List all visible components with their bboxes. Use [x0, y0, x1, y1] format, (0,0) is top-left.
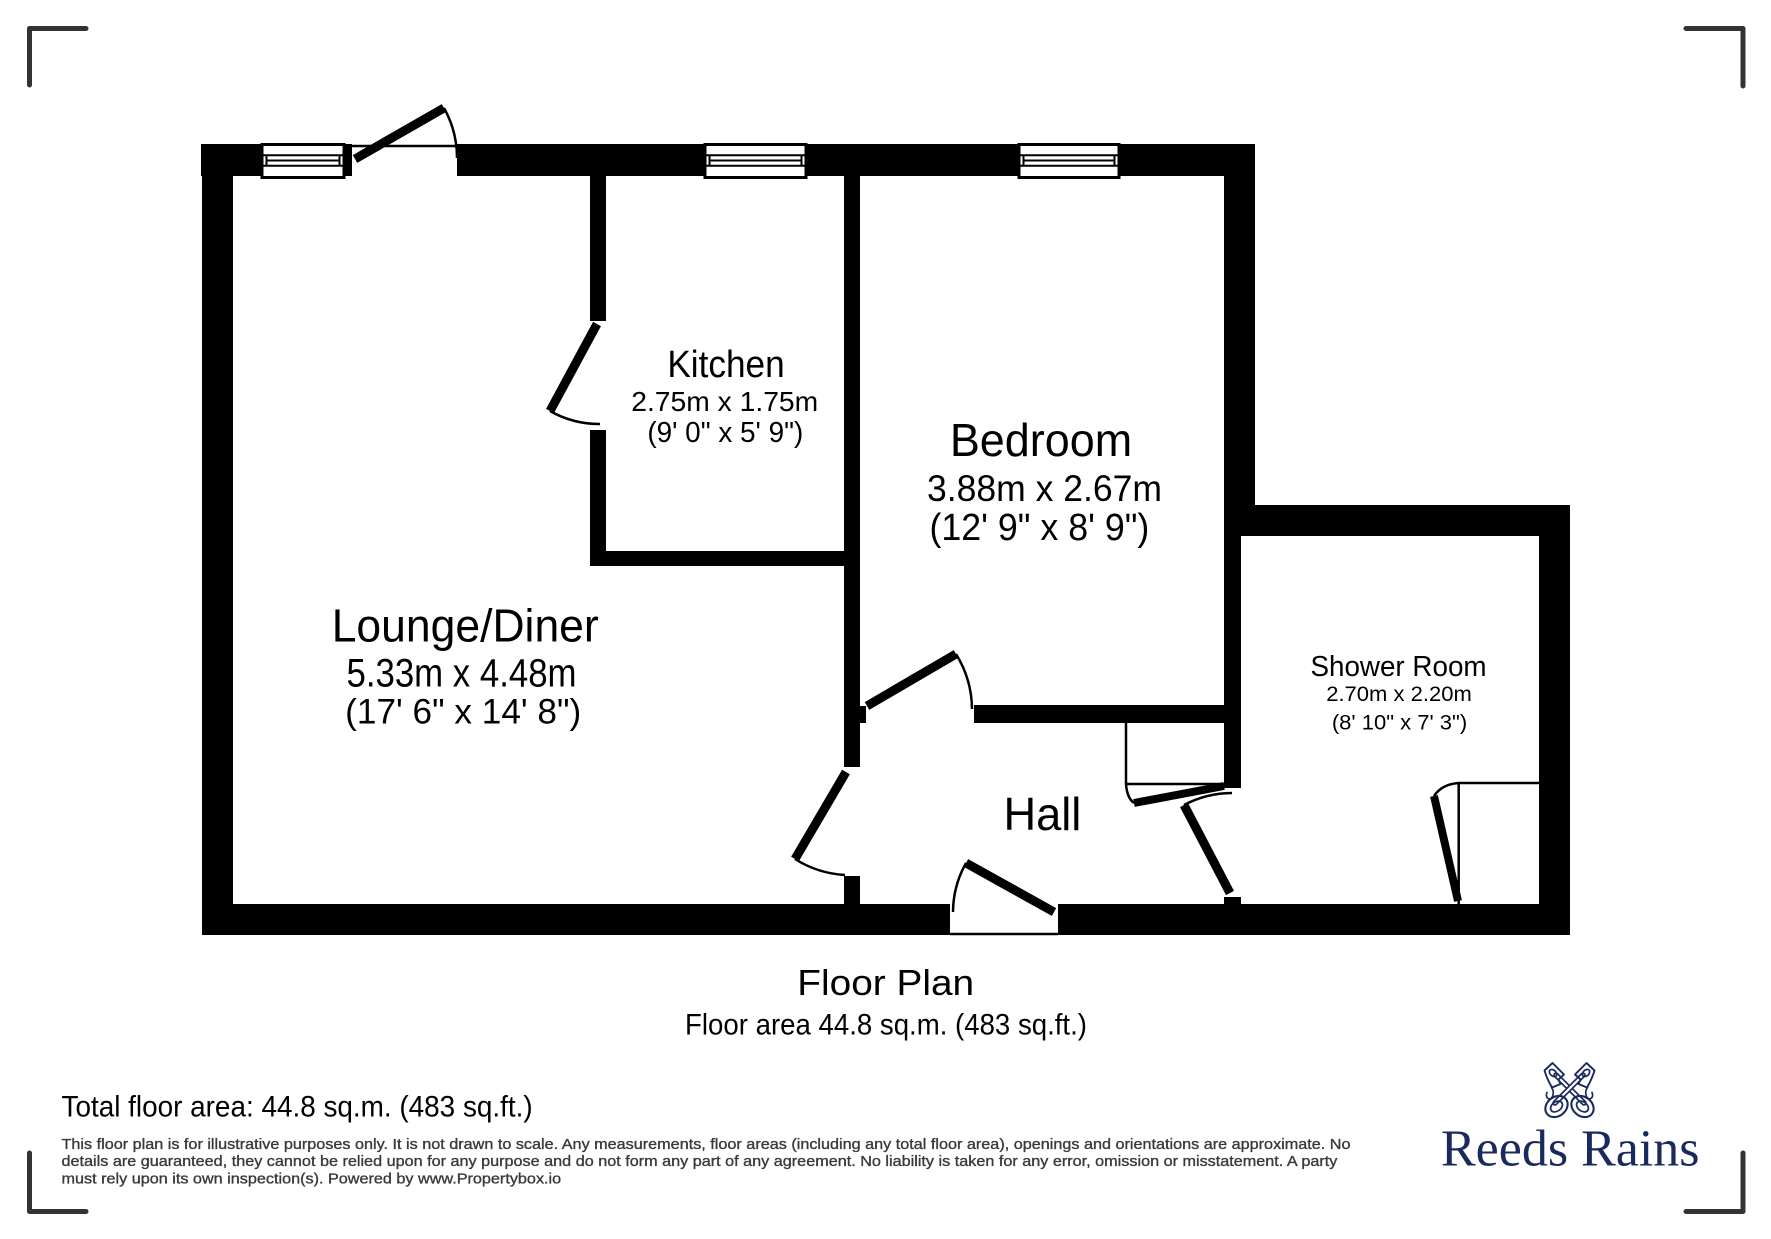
svg-text:(9' 0" x 5' 9"): (9' 0" x 5' 9")	[647, 417, 803, 450]
svg-text:Floor area 44.8 sq.m. (483 sq.: Floor area 44.8 sq.m. (483 sq.ft.)	[685, 1009, 1087, 1042]
svg-text:Total floor area: 44.8 sq.m. (: Total floor area: 44.8 sq.m. (483 sq.ft.…	[62, 1091, 533, 1124]
svg-text:Hall: Hall	[1003, 787, 1081, 840]
svg-text:Kitchen: Kitchen	[667, 343, 784, 386]
svg-text:5.33m x 4.48m: 5.33m x 4.48m	[346, 650, 576, 695]
svg-text:(12' 9" x 8' 9"): (12' 9" x 8' 9")	[929, 506, 1149, 548]
svg-text:(17' 6" x 14' 8"): (17' 6" x 14' 8")	[345, 693, 581, 732]
svg-text:details are guaranteed, they c: details are guaranteed, they cannot be r…	[62, 1154, 1338, 1170]
svg-text:Bedroom: Bedroom	[950, 415, 1132, 467]
svg-text:Reeds Rains: Reeds Rains	[1441, 1121, 1700, 1178]
svg-text:Shower Room: Shower Room	[1310, 651, 1486, 682]
svg-text:3.88m x 2.67m: 3.88m x 2.67m	[927, 468, 1162, 510]
svg-text:Floor Plan: Floor Plan	[797, 962, 974, 1003]
svg-text:This floor plan is for illustr: This floor plan is for illustrative purp…	[62, 1136, 1351, 1152]
svg-text:(8' 10" x 7' 3"): (8' 10" x 7' 3")	[1332, 710, 1467, 735]
svg-text:must rely upon its own inspect: must rely upon its own inspection(s). Po…	[62, 1171, 562, 1187]
svg-text:2.75m x 1.75m: 2.75m x 1.75m	[631, 386, 818, 417]
svg-text:2.70m x 2.20m: 2.70m x 2.20m	[1326, 681, 1472, 706]
svg-text:Lounge/Diner: Lounge/Diner	[332, 600, 599, 652]
